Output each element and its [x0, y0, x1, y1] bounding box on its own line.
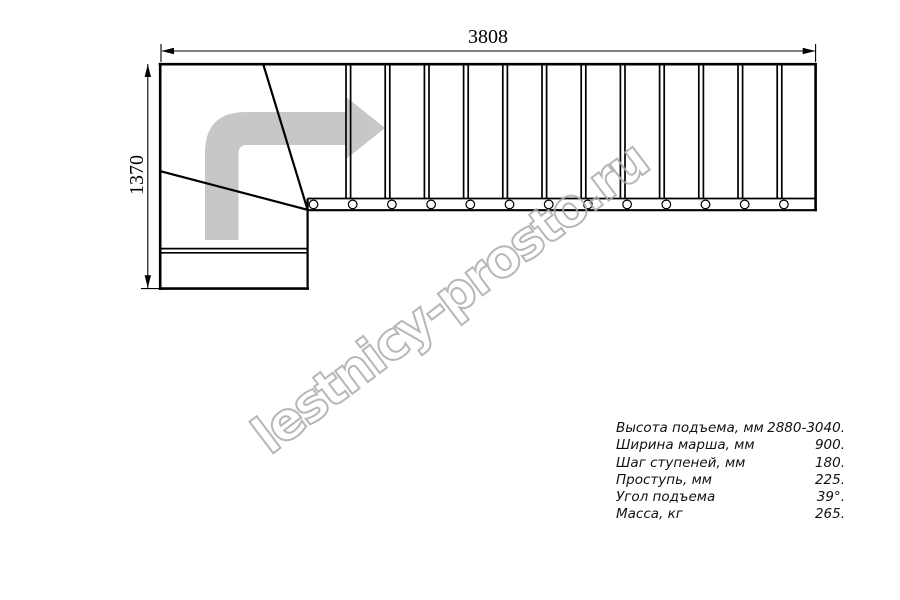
left-dim-arrow-top: [145, 65, 151, 78]
baluster-circle: [466, 200, 475, 209]
baluster-circle: [348, 200, 357, 209]
spec-value: 39°.: [817, 489, 845, 506]
baluster-circle: [427, 200, 436, 209]
baluster-circle: [701, 200, 710, 209]
left-dim-arrow-bottom: [145, 275, 151, 288]
specs-list: Высота подъема, мм2880-3040.Ширина марша…: [616, 420, 845, 524]
spec-row: Шаг ступеней, мм180.: [616, 455, 845, 472]
spec-value: 225.: [815, 472, 845, 489]
watermark-text: lestnicy-prosto.ru: [241, 131, 659, 466]
spec-label: Масса, кг: [616, 506, 683, 523]
baluster-circle: [740, 200, 749, 209]
baluster-circle: [309, 200, 318, 209]
staircase-drawing-page: lestnicy-prosto.ru 3808 1370 Высота подъ…: [0, 0, 900, 600]
top-dim-arrow-right: [803, 48, 816, 54]
baluster-circle: [505, 200, 514, 209]
spec-label: Шаг ступеней, мм: [616, 455, 745, 472]
spec-row: Проступь, мм225.: [616, 472, 845, 489]
spec-value: 265.: [815, 506, 845, 523]
baluster-circle: [388, 200, 397, 209]
baluster-circle: [662, 200, 671, 209]
spec-label: Ширина марша, мм: [616, 437, 755, 454]
spec-row: Ширина марша, мм900.: [616, 437, 845, 454]
spec-row: Масса, кг265.: [616, 506, 845, 523]
spec-label: Высота подъема, мм: [616, 420, 764, 437]
spec-row: Высота подъема, мм2880-3040.: [616, 420, 845, 437]
spec-value: 900.: [815, 437, 845, 454]
total-length-dimension-label: 3808: [453, 27, 523, 47]
spec-value: 2880-3040.: [767, 420, 845, 437]
baluster-circle: [780, 200, 789, 209]
total-width-dimension-label: 1370: [127, 149, 147, 201]
spec-value: 180.: [815, 455, 845, 472]
spec-label: Проступь, мм: [616, 472, 712, 489]
top-dim-arrow-left: [162, 48, 175, 54]
spec-row: Угол подъема39°.: [616, 489, 845, 506]
spec-label: Угол подъема: [616, 489, 715, 506]
